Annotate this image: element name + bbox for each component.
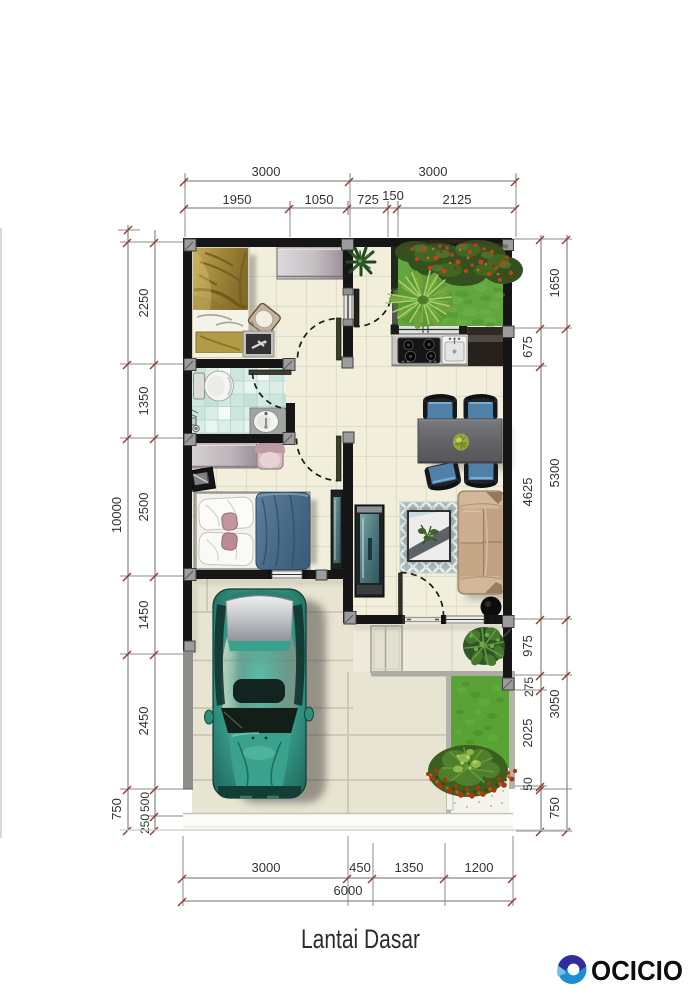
svg-text:6000: 6000 [334,883,363,898]
svg-text:2125: 2125 [443,192,472,207]
svg-text:725: 725 [357,192,379,207]
svg-text:10000: 10000 [109,497,124,533]
svg-text:OCICIO: OCICIO [591,955,683,986]
svg-text:1450: 1450 [136,601,151,630]
svg-text:3000: 3000 [252,164,281,179]
svg-text:675: 675 [520,336,535,358]
svg-text:450: 450 [349,860,371,875]
svg-text:3000: 3000 [252,860,281,875]
svg-text:1350: 1350 [395,860,424,875]
svg-text:750: 750 [109,798,124,820]
svg-text:Lantai Dasar: Lantai Dasar [301,924,420,954]
svg-text:1050: 1050 [305,192,334,207]
svg-text:5300: 5300 [547,459,562,488]
svg-text:1350: 1350 [136,387,151,416]
svg-text:1650: 1650 [547,269,562,298]
svg-text:150: 150 [382,188,404,203]
svg-text:275: 275 [522,677,536,697]
svg-text:250: 250 [138,814,152,834]
svg-text:750: 750 [547,797,562,819]
svg-text:2500: 2500 [136,493,151,522]
svg-text:3050: 3050 [547,690,562,719]
svg-text:2250: 2250 [136,289,151,318]
svg-text:500: 500 [138,792,152,812]
svg-text:2025: 2025 [520,719,535,748]
svg-text:2450: 2450 [136,707,151,736]
svg-text:975: 975 [520,635,535,657]
svg-text:50: 50 [521,777,535,791]
svg-text:1950: 1950 [223,192,252,207]
svg-text:4625: 4625 [520,478,535,507]
svg-text:1200: 1200 [465,860,494,875]
svg-text:3000: 3000 [419,164,448,179]
